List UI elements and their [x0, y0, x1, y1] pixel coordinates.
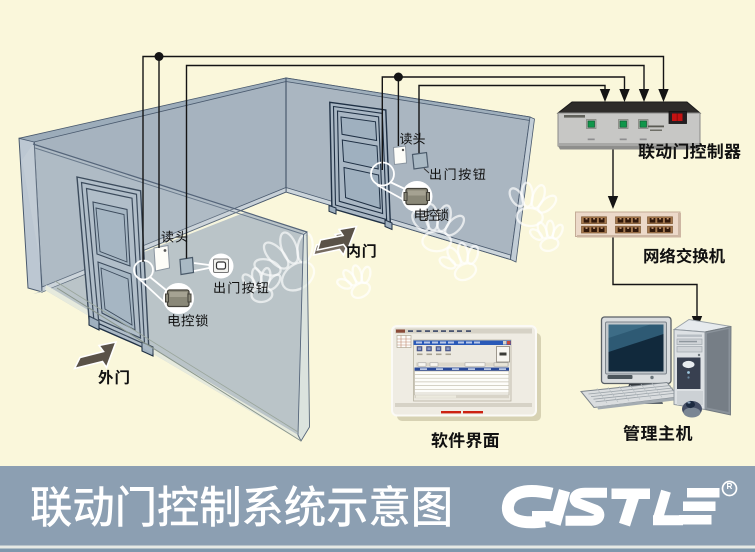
svg-text:R: R — [727, 482, 733, 491]
